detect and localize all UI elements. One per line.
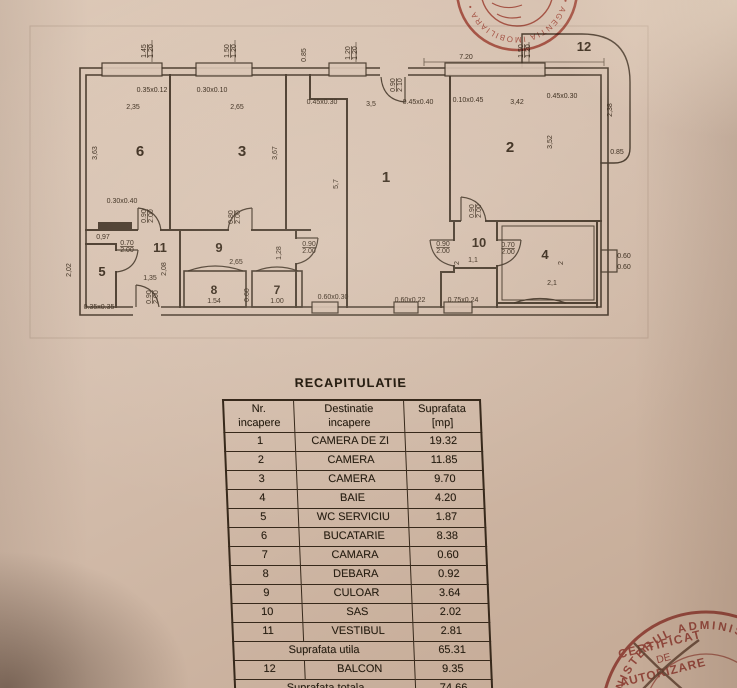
cell-nr: 1 bbox=[224, 433, 295, 452]
room-11-label: 11 bbox=[153, 240, 167, 255]
dimension-label: 0.10x0.45 bbox=[453, 97, 484, 104]
recap-table: Nr. incapere Destinatie incapere Suprafa… bbox=[222, 399, 494, 688]
dimension-label: 0.45x0.30 bbox=[307, 99, 338, 106]
cell-dest: VESTIBUL bbox=[303, 623, 414, 642]
recap-title: RECAPITULATIE bbox=[221, 376, 481, 390]
dimension-label: 7.20 bbox=[459, 54, 473, 61]
window-room2 bbox=[445, 63, 545, 76]
dimension-label: 0.45x0.40 bbox=[403, 99, 434, 106]
dimension-label: 3,52 bbox=[547, 135, 554, 149]
header-suprafata: Suprafata [mp] bbox=[404, 400, 482, 433]
room-6-label: 6 bbox=[136, 143, 144, 160]
recap-row: 2CAMERA11.85 bbox=[225, 452, 483, 471]
dimension-label: 2,65 bbox=[230, 104, 244, 111]
recap-row: 4BAIE4.20 bbox=[227, 490, 485, 509]
dimension-label: 2 bbox=[454, 261, 461, 265]
dimension-label: 0.902.00 bbox=[141, 209, 155, 223]
cell-dest: CAMARA bbox=[299, 547, 410, 566]
recap-row: 1CAMERA DE ZI19.32 bbox=[224, 433, 482, 452]
room-8-label: 8 bbox=[211, 283, 218, 297]
dimension-label: 0.75x0.24 bbox=[448, 297, 479, 304]
wall-pier bbox=[98, 222, 132, 230]
window-room1 bbox=[329, 63, 366, 76]
cell-nr: 8 bbox=[230, 566, 301, 585]
dimension-label: 0.802.00 bbox=[228, 210, 242, 224]
dimension-label: 0.902.00 bbox=[146, 290, 160, 304]
dimension-label: 3,63 bbox=[92, 146, 99, 160]
dimension-label: 1,28 bbox=[276, 246, 283, 260]
room-10-label: 10 bbox=[472, 235, 486, 250]
dimension-label: 2,08 bbox=[161, 262, 168, 276]
header-nr: Nr. incapere bbox=[223, 400, 295, 433]
recapitulation-section: RECAPITULATIE Nr. incapere Destinatie in… bbox=[221, 376, 494, 688]
dimension-label: 1.54 bbox=[207, 298, 221, 305]
room-3-label: 3 bbox=[238, 143, 246, 160]
dimension-label: 0.30x0.10 bbox=[197, 87, 228, 94]
dimension-label: 3,5 bbox=[366, 101, 376, 108]
recap-row: 9CULOAR3.64 bbox=[231, 585, 489, 604]
cell-dest: WC SERVICIU bbox=[298, 509, 409, 528]
recap-header: Nr. incapere Destinatie incapere Suprafa… bbox=[223, 400, 481, 433]
dimension-label: 0.60 bbox=[617, 264, 631, 271]
cell-dest: BAIE bbox=[297, 490, 408, 509]
balcony-row: 12 BALCON 9.35 bbox=[234, 661, 492, 680]
dimension-label: 1.451.20 bbox=[141, 44, 155, 58]
room-2-label: 2 bbox=[506, 139, 514, 156]
recap-summary: Suprafata utila 65.31 12 BALCON 9.35 Sup… bbox=[233, 642, 492, 688]
window-room6 bbox=[102, 63, 162, 76]
room-5-label: 5 bbox=[98, 264, 105, 279]
dimension-label: 2,35 bbox=[126, 104, 140, 111]
cell-nr: 4 bbox=[227, 490, 298, 509]
cell-dest: CAMERA DE ZI bbox=[295, 433, 406, 452]
dimension-label: 0.30x0.40 bbox=[107, 198, 138, 205]
subtotal-row: Suprafata utila 65.31 bbox=[233, 642, 491, 661]
total-value: 74.66 bbox=[415, 680, 492, 688]
recap-rows: 1CAMERA DE ZI19.322CAMERA11.853CAMERA9.7… bbox=[224, 433, 490, 642]
dimension-label: 0.60 bbox=[244, 288, 251, 302]
dimension-label: 2,1 bbox=[547, 280, 557, 287]
dimension-label: 1.201.20 bbox=[345, 46, 359, 60]
cell-mp: 0.92 bbox=[411, 566, 488, 585]
dimension-label: 1.00 bbox=[270, 298, 284, 305]
dimension-label: 2,02 bbox=[66, 263, 73, 277]
subtotal-label: Suprafata utila bbox=[233, 642, 414, 661]
scanned-floorplan-photo: 6312121195104871.451.201.501.201.201.200… bbox=[0, 0, 737, 688]
total-row: Suprafata totala 74.66 bbox=[235, 680, 493, 688]
cell-mp: 2.81 bbox=[413, 623, 490, 642]
dimension-label: 0.702.00 bbox=[501, 242, 515, 256]
cell-mp: 19.32 bbox=[405, 433, 482, 452]
recap-row: 8DEBARA0.92 bbox=[230, 566, 488, 585]
dimension-label: 0.60x0.30 bbox=[318, 294, 349, 301]
recap-row: 7CAMARA0.60 bbox=[229, 547, 487, 566]
dimension-label: 0.902.00 bbox=[302, 241, 316, 255]
dimension-label: 1.501.20 bbox=[224, 44, 238, 58]
dimension-label: 0.60x0.22 bbox=[395, 297, 426, 304]
cell-mp: 1.87 bbox=[408, 509, 485, 528]
cell-dest: DEBARA bbox=[300, 566, 411, 585]
cell-mp: 3.64 bbox=[411, 585, 488, 604]
cell-nr: 12 bbox=[234, 661, 305, 680]
cell-dest: BALCON bbox=[304, 661, 415, 680]
cell-nr: 6 bbox=[228, 528, 299, 547]
dimension-label: 2,38 bbox=[607, 103, 614, 117]
cell-mp: 8.38 bbox=[409, 528, 486, 547]
cell-mp: 2.02 bbox=[412, 604, 489, 623]
recap-row: 10SAS2.02 bbox=[232, 604, 490, 623]
dimension-label: 3,67 bbox=[272, 146, 279, 160]
dimension-label: 0.85 bbox=[610, 149, 624, 156]
recap-row: 5WC SERVICIU1.87 bbox=[228, 509, 486, 528]
dimension-label: 0.902.00 bbox=[469, 204, 483, 218]
dimension-label: 3,42 bbox=[510, 99, 524, 106]
cell-nr: 3 bbox=[226, 471, 297, 490]
cell-dest: CULOAR bbox=[301, 585, 412, 604]
cell-dest: SAS bbox=[302, 604, 413, 623]
dimension-label: 5,7 bbox=[333, 179, 340, 189]
room-7-label: 7 bbox=[274, 283, 281, 297]
cell-dest: CAMERA bbox=[295, 452, 406, 471]
dimension-label: 0.702.00 bbox=[120, 240, 134, 254]
room-1-label: 1 bbox=[382, 169, 390, 186]
dimension-label: 2,65 bbox=[229, 259, 243, 266]
header-destinatie: Destinatie incapere bbox=[293, 400, 405, 433]
recap-row: 11VESTIBUL2.81 bbox=[232, 623, 490, 642]
dimension-label: 0.60 bbox=[617, 253, 631, 260]
cell-mp: 9.70 bbox=[407, 471, 484, 490]
subtotal-value: 65.31 bbox=[414, 642, 491, 661]
cell-nr: 7 bbox=[229, 547, 300, 566]
cell-mp: 11.85 bbox=[406, 452, 483, 471]
cell-nr: 5 bbox=[228, 509, 299, 528]
dimension-label: 0.45x0.30 bbox=[547, 93, 578, 100]
window-room3 bbox=[196, 63, 252, 76]
cell-nr: 2 bbox=[225, 452, 296, 471]
cell-mp: 4.20 bbox=[407, 490, 484, 509]
dimension-label: 0,97 bbox=[96, 234, 110, 241]
dimension-label: 0.85 bbox=[301, 48, 308, 62]
cell-dest: CAMERA bbox=[296, 471, 407, 490]
recap-row: 3CAMERA9.70 bbox=[226, 471, 484, 490]
dimension-label: 2 bbox=[558, 261, 565, 265]
room-4-label: 4 bbox=[541, 247, 549, 262]
room-12-label: 12 bbox=[577, 39, 591, 54]
total-label: Suprafata totala bbox=[235, 680, 417, 688]
cell-nr: 9 bbox=[231, 585, 302, 604]
cell-nr: 10 bbox=[232, 604, 303, 623]
room-9-label: 9 bbox=[215, 240, 222, 255]
window-bottom-1 bbox=[312, 302, 338, 313]
dimension-label: 1,35 bbox=[143, 275, 157, 282]
cell-dest: BUCATARIE bbox=[299, 528, 410, 547]
dimension-label: 1,1 bbox=[468, 257, 478, 264]
cell-mp: 9.35 bbox=[415, 661, 492, 680]
dimension-label: 0.35x0.12 bbox=[137, 87, 168, 94]
recap-row: 6BUCATARIE8.38 bbox=[228, 528, 486, 547]
cell-mp: 0.60 bbox=[410, 547, 487, 566]
cell-nr: 11 bbox=[232, 623, 303, 642]
dimension-label: 0.902.10 bbox=[390, 78, 404, 92]
dimension-label: 0.902.00 bbox=[436, 241, 450, 255]
dimension-label: 0.35x0.35 bbox=[84, 304, 115, 311]
